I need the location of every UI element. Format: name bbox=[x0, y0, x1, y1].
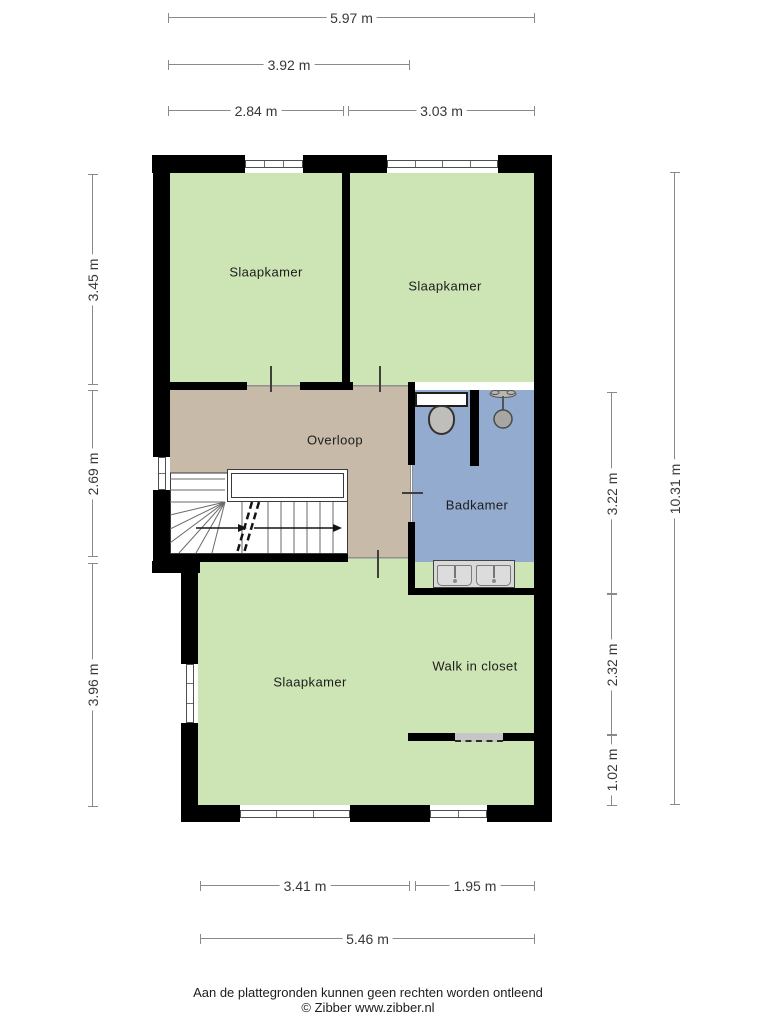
floorplan-canvas: Slaapkamer Slaapkamer Overloop Badkamer … bbox=[0, 0, 768, 1024]
dimension-top-left-span: 3.92 m bbox=[168, 60, 410, 70]
wall-closet-bottom-right bbox=[503, 733, 534, 741]
window-pane bbox=[159, 474, 165, 489]
window-band bbox=[245, 160, 303, 168]
faucet-icon bbox=[493, 566, 495, 578]
room-label-bedroom-3: Slaapkamer bbox=[273, 675, 346, 690]
window-pane bbox=[471, 161, 498, 167]
room-label-bathroom: Badkamer bbox=[446, 498, 508, 513]
room-label-landing: Overloop bbox=[307, 433, 363, 448]
window-pane bbox=[187, 684, 193, 703]
window-pane bbox=[443, 161, 471, 167]
shower-icon bbox=[486, 386, 520, 432]
window-bottom-right bbox=[430, 805, 487, 822]
dimension-right-closet: 2.32 m bbox=[607, 593, 617, 736]
room-bedroom-2 bbox=[350, 173, 534, 382]
window-pane bbox=[159, 458, 165, 474]
window-bottom-left bbox=[240, 805, 350, 822]
dimension-bottom-total: 5.46 m bbox=[200, 934, 535, 944]
dimension-top-bedroom1: 2.84 m bbox=[168, 106, 344, 116]
window-pane bbox=[187, 665, 193, 684]
dimension-left-landing: 2.69 m bbox=[88, 390, 98, 557]
window-band bbox=[430, 810, 487, 818]
wall-bathroom-stub bbox=[470, 390, 479, 466]
footer-copyright: © Zibber www.zibber.nl bbox=[301, 1000, 434, 1015]
window-top-right bbox=[387, 155, 498, 173]
wall-bedroom-divider bbox=[342, 155, 350, 390]
door-leaf-tick bbox=[379, 366, 381, 392]
drain-icon bbox=[453, 579, 457, 583]
dimension-label: 3.96 m bbox=[85, 660, 101, 711]
dimension-label: 5.97 m bbox=[326, 10, 377, 26]
dimension-left-bedroom1: 3.45 m bbox=[88, 174, 98, 385]
dimension-label: 1.02 m bbox=[604, 745, 620, 796]
window-pane bbox=[241, 811, 277, 817]
window-pane bbox=[388, 161, 416, 167]
room-label-bedroom-1: Slaapkamer bbox=[229, 265, 302, 280]
window-band bbox=[240, 810, 350, 818]
door-opening-bedroom-1 bbox=[247, 382, 300, 390]
drain-icon bbox=[492, 579, 496, 583]
room-label-bedroom-2: Slaapkamer bbox=[408, 279, 481, 294]
dimension-right-total: 10.31 m bbox=[670, 172, 680, 805]
staircase bbox=[170, 469, 348, 554]
dimension-label: 2.32 m bbox=[604, 639, 620, 690]
dimension-label: 3.22 m bbox=[604, 468, 620, 519]
room-bedroom-3 bbox=[198, 562, 534, 805]
window-pane bbox=[459, 811, 486, 817]
dimension-label: 5.46 m bbox=[342, 931, 393, 947]
dimension-bottom-bedroom3: 3.41 m bbox=[200, 881, 410, 891]
footer-disclaimer: Aan de plattegronden kunnen geen rechten… bbox=[193, 985, 543, 1000]
wall-right bbox=[534, 155, 552, 822]
sink-basin bbox=[437, 565, 472, 586]
sink-basin bbox=[476, 565, 511, 586]
dimension-label: 2.84 m bbox=[231, 103, 282, 119]
door-leaf-tick bbox=[270, 366, 272, 392]
toilet-icon bbox=[415, 392, 468, 437]
wall-left-upper bbox=[153, 155, 170, 573]
dimension-label: 1.95 m bbox=[450, 878, 501, 894]
dimension-top-bedroom2: 3.03 m bbox=[348, 106, 535, 116]
room-label-closet: Walk in closet bbox=[432, 659, 517, 674]
window-pane bbox=[284, 161, 302, 167]
window-band bbox=[387, 160, 498, 168]
window-left-lower bbox=[181, 664, 198, 723]
dimension-label: 3.45 m bbox=[85, 254, 101, 305]
window-pane bbox=[265, 161, 284, 167]
double-sink-icon bbox=[433, 560, 515, 588]
wall-bottom bbox=[181, 805, 552, 822]
dimension-label: 3.41 m bbox=[280, 878, 331, 894]
window-band bbox=[158, 457, 166, 490]
wall-bathroom-closet bbox=[408, 588, 534, 595]
wall-closet-bottom-left bbox=[408, 733, 455, 741]
faucet-icon bbox=[454, 566, 456, 578]
door-leaf-tick bbox=[377, 550, 379, 578]
closet-opening-dashed bbox=[455, 733, 503, 742]
dimension-label: 10.31 m bbox=[667, 459, 683, 518]
window-pane bbox=[246, 161, 265, 167]
dimension-left-bedroom3: 3.96 m bbox=[88, 563, 98, 807]
window-pane bbox=[416, 161, 444, 167]
dimension-right-bathroom: 3.22 m bbox=[607, 392, 617, 595]
toilet-bowl bbox=[428, 405, 455, 435]
wall-mid-left bbox=[170, 382, 247, 390]
dimension-label: 3.92 m bbox=[264, 57, 315, 73]
window-band bbox=[186, 664, 194, 723]
window-pane bbox=[314, 811, 349, 817]
door-leaf-tick bbox=[402, 492, 423, 494]
wall-mid-center bbox=[300, 382, 353, 390]
wall-landing-bottom bbox=[170, 554, 348, 562]
window-left-upper bbox=[153, 457, 170, 490]
dimension-bottom-closet: 1.95 m bbox=[415, 881, 535, 891]
dimension-top-total: 5.97 m bbox=[168, 13, 535, 23]
window-pane bbox=[187, 704, 193, 722]
window-top-left bbox=[245, 155, 303, 173]
dimension-right-strip: 1.02 m bbox=[607, 734, 617, 806]
window-pane bbox=[431, 811, 459, 817]
dimension-label: 3.03 m bbox=[416, 103, 467, 119]
dimension-label: 2.69 m bbox=[85, 448, 101, 499]
window-pane bbox=[277, 811, 313, 817]
